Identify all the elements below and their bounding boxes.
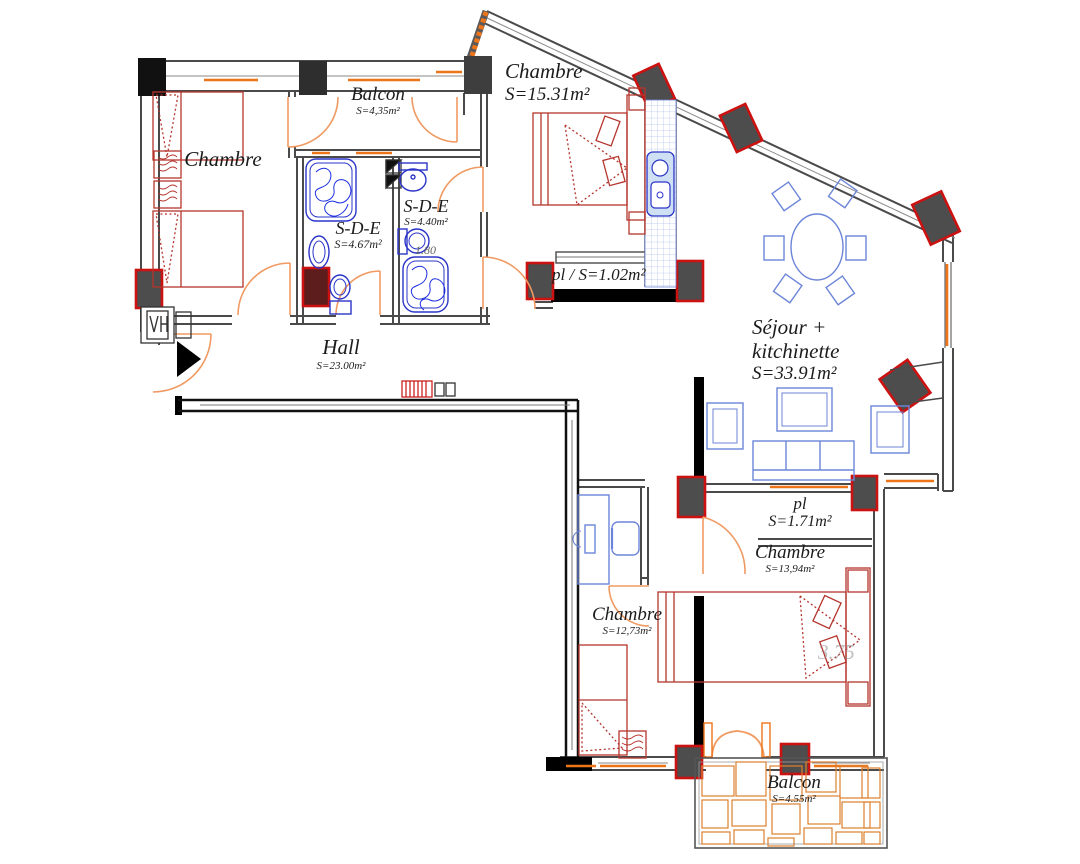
room-label-chambre-nw: Chambre (168, 148, 278, 172)
floorplan: Chambre Balcon S=4,35m² Chambre S=15.31m… (0, 0, 1080, 864)
room-label-chambre-s: Chambre S=12,73m² (578, 604, 676, 638)
room-label-chambre-se: Chambre S=13,94m² (743, 542, 837, 576)
kitchenette (645, 100, 676, 287)
radiator (402, 381, 432, 397)
beds (153, 88, 870, 758)
black-walls (175, 289, 704, 771)
dimension-180: 1.80 (415, 243, 436, 258)
room-label-pl-chambre: pl S=1.71m² (745, 494, 855, 531)
floorplan-drawing (0, 0, 1080, 864)
room-label-balcon-top: Balcon S=4,35m² (330, 84, 426, 118)
room-label-pl-hall: pl / S=1.02m² (552, 265, 682, 284)
room-label-balcon-bottom: Balcon S=4.55m² (748, 772, 840, 806)
room-label-hall: Hall S=23.00m² (296, 336, 386, 372)
room-label-chambre-n: Chambre S=15.31m² (505, 60, 635, 105)
dimension-375: 3.75 (818, 640, 855, 665)
room-label-sejour: Séjour + kitchinette S=33.91m² (752, 316, 912, 384)
room-label-sde-1: S-D-E S=4.67m² (318, 218, 398, 252)
room-label-sde-2: S-D-E S=4.40m² (390, 196, 462, 228)
